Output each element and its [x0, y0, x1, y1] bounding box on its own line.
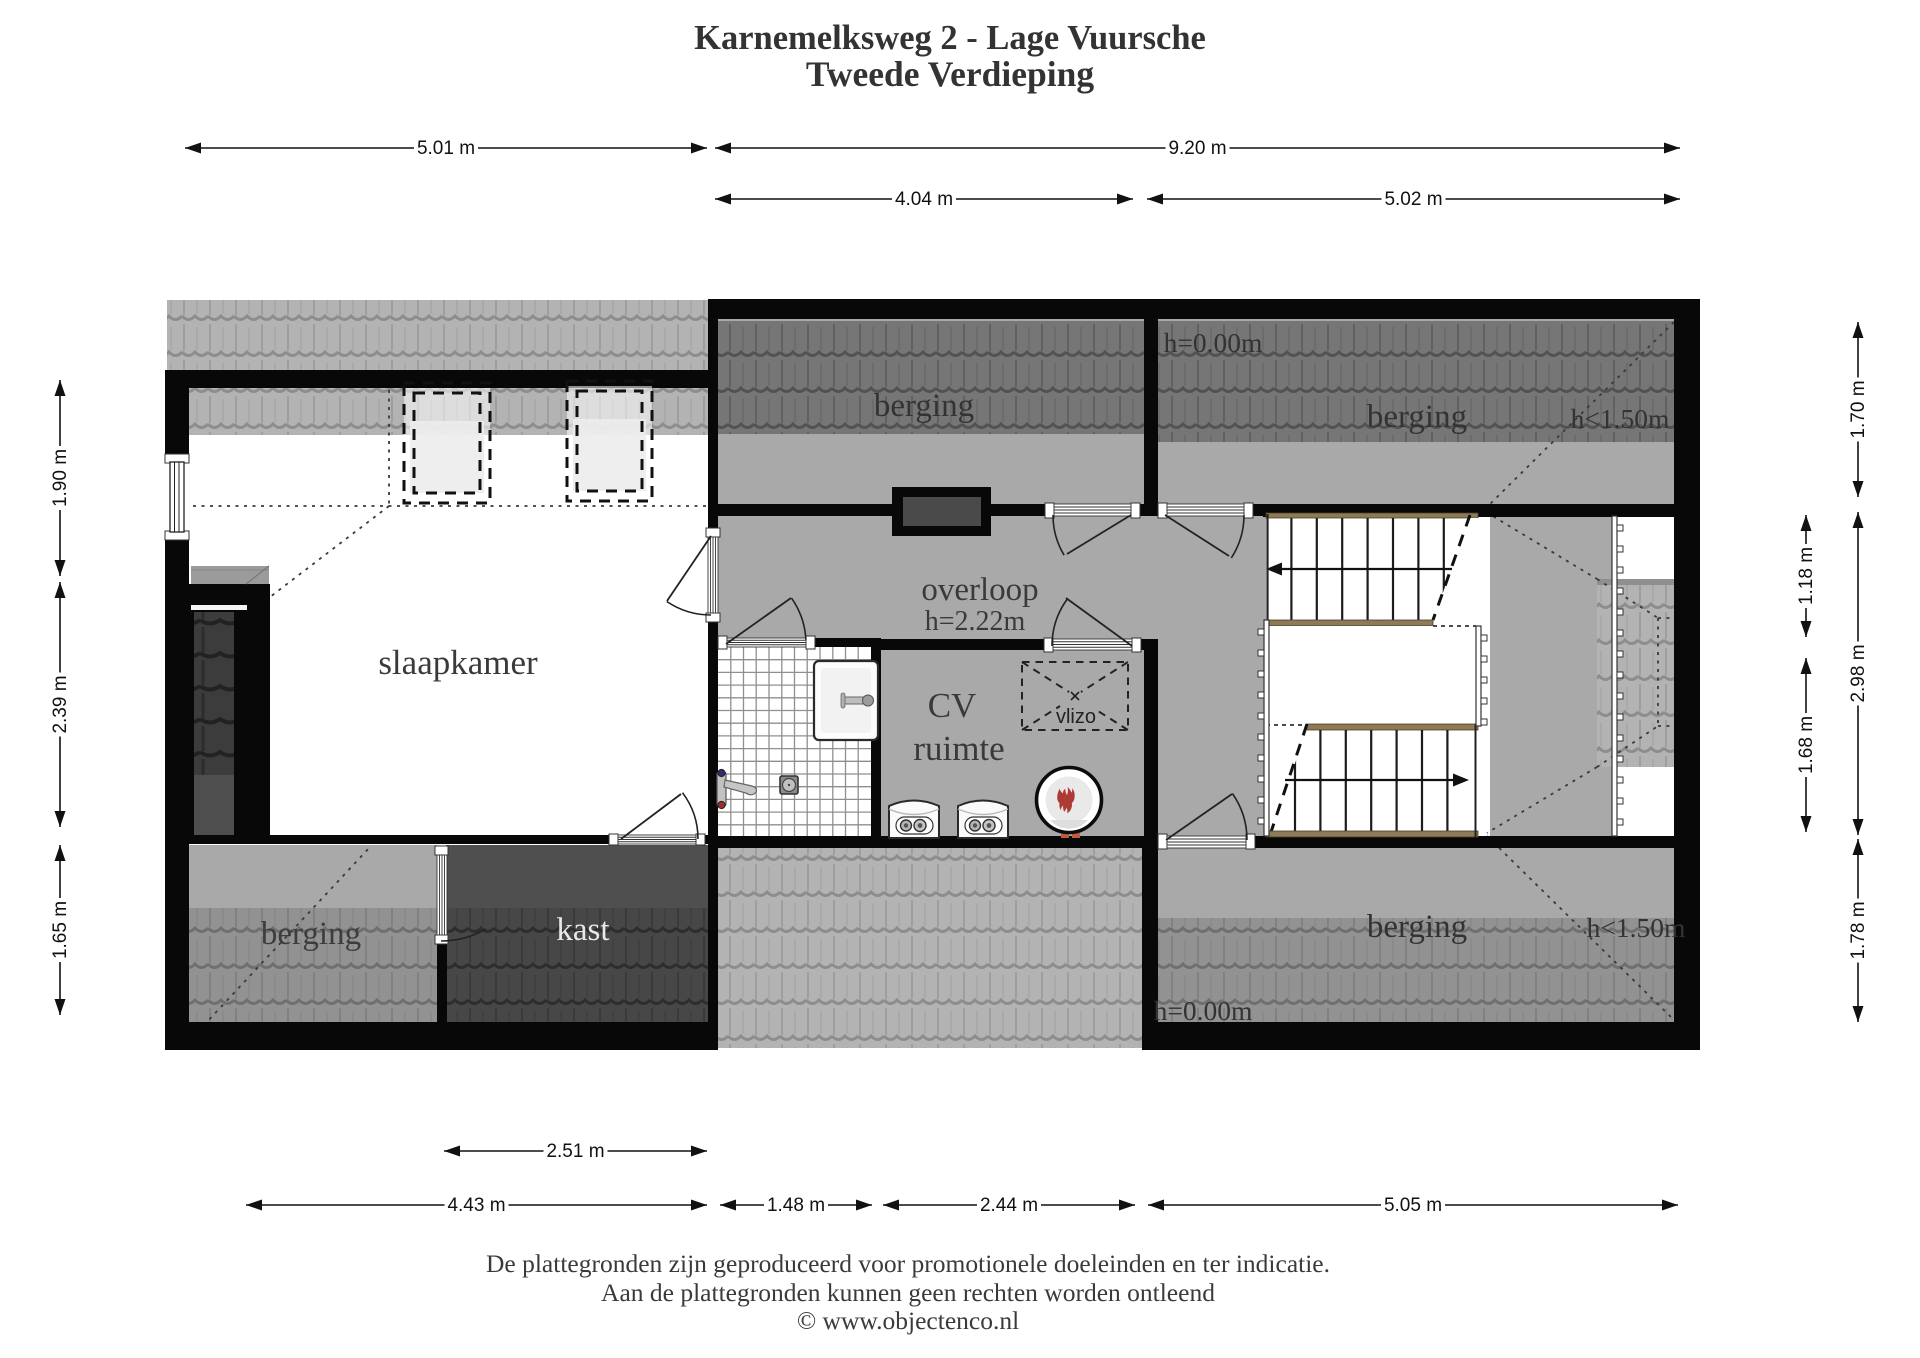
svg-text:2.44 m: 2.44 m: [980, 1195, 1038, 1216]
svg-text:2.51 m: 2.51 m: [546, 1141, 604, 1162]
svg-text:2.39 m: 2.39 m: [50, 675, 71, 733]
svg-text:4.43 m: 4.43 m: [447, 1195, 505, 1216]
svg-text:5.02 m: 5.02 m: [1384, 189, 1442, 210]
svg-text:2.98 m: 2.98 m: [1848, 644, 1869, 702]
svg-text:vlizo: vlizo: [1056, 706, 1096, 728]
svg-text:1.78 m: 1.78 m: [1848, 901, 1869, 959]
svg-text:De plattegronden zijn geproduc: De plattegronden zijn geproduceerd voor …: [486, 1249, 1330, 1278]
svg-text:slaapkamer: slaapkamer: [378, 643, 538, 682]
svg-text:berging: berging: [1367, 909, 1467, 945]
svg-text:5.01 m: 5.01 m: [417, 138, 475, 159]
svg-text:kast: kast: [556, 912, 609, 948]
svg-text:1.70 m: 1.70 m: [1848, 380, 1869, 438]
svg-text:h<1.50m: h<1.50m: [1587, 912, 1686, 943]
svg-text:overloop: overloop: [921, 572, 1038, 608]
svg-text:Aan de plattegronden kunnen ge: Aan de plattegronden kunnen geen rechten…: [601, 1278, 1215, 1307]
svg-text:berging: berging: [1367, 399, 1467, 435]
svg-text:9.20 m: 9.20 m: [1168, 138, 1226, 159]
svg-text:1.18 m: 1.18 m: [1796, 547, 1817, 605]
svg-text:© www.objectenco.nl: © www.objectenco.nl: [797, 1306, 1019, 1335]
svg-text:CV: CV: [928, 686, 977, 725]
svg-text:berging: berging: [874, 388, 974, 424]
svg-text:1.68 m: 1.68 m: [1796, 716, 1817, 774]
svg-text:h=0.00m: h=0.00m: [1164, 327, 1263, 358]
svg-text:berging: berging: [261, 916, 361, 952]
svg-text:Tweede Verdieping: Tweede Verdieping: [806, 54, 1095, 94]
svg-text:1.48 m: 1.48 m: [767, 1195, 825, 1216]
svg-text:Karnemelksweg 2 - Lage Vuursch: Karnemelksweg 2 - Lage Vuursche: [694, 19, 1206, 57]
svg-text:h=2.22m: h=2.22m: [925, 606, 1026, 637]
svg-text:4.04 m: 4.04 m: [895, 189, 953, 210]
svg-text:5.05 m: 5.05 m: [1384, 1195, 1442, 1216]
svg-text:ruimte: ruimte: [913, 729, 1004, 768]
svg-text:h=0.00m: h=0.00m: [1154, 995, 1253, 1026]
svg-text:1.65 m: 1.65 m: [50, 901, 71, 959]
svg-text:1.90 m: 1.90 m: [50, 449, 71, 507]
svg-text:h<1.50m: h<1.50m: [1571, 403, 1670, 434]
